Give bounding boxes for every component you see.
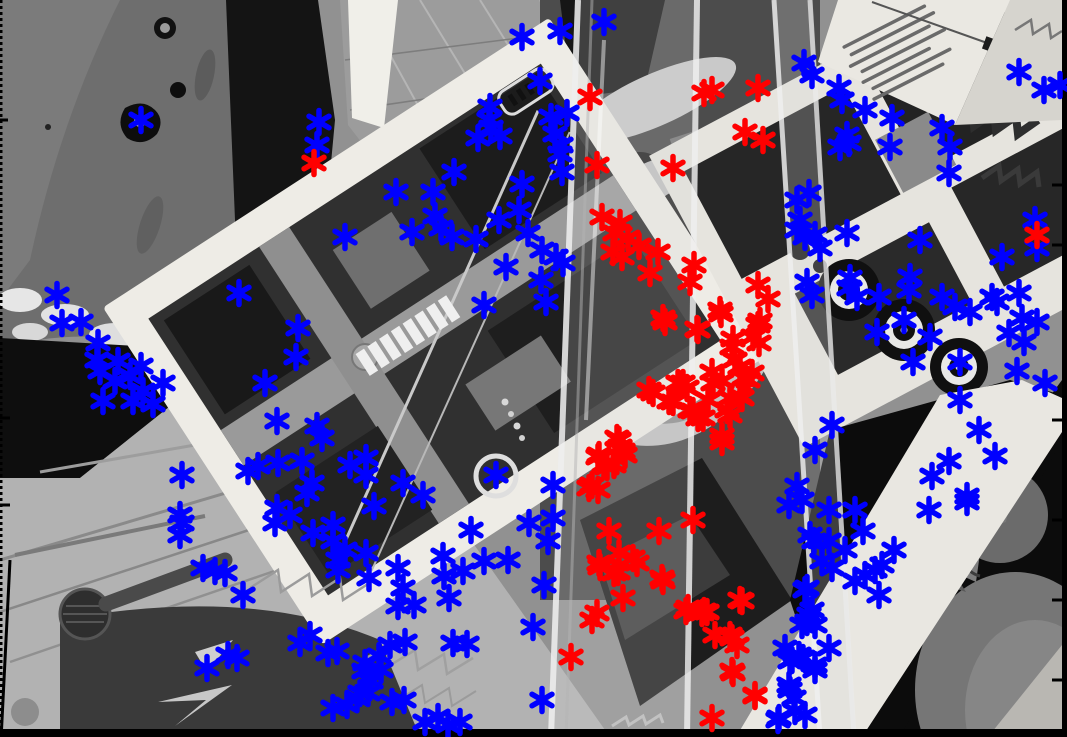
scene-svg — [0, 0, 1067, 737]
photo-with-feature-overlay — [0, 0, 1067, 737]
right-border — [1062, 0, 1067, 737]
bottom-border — [0, 729, 1067, 737]
spot — [45, 124, 51, 130]
spot — [170, 82, 186, 98]
